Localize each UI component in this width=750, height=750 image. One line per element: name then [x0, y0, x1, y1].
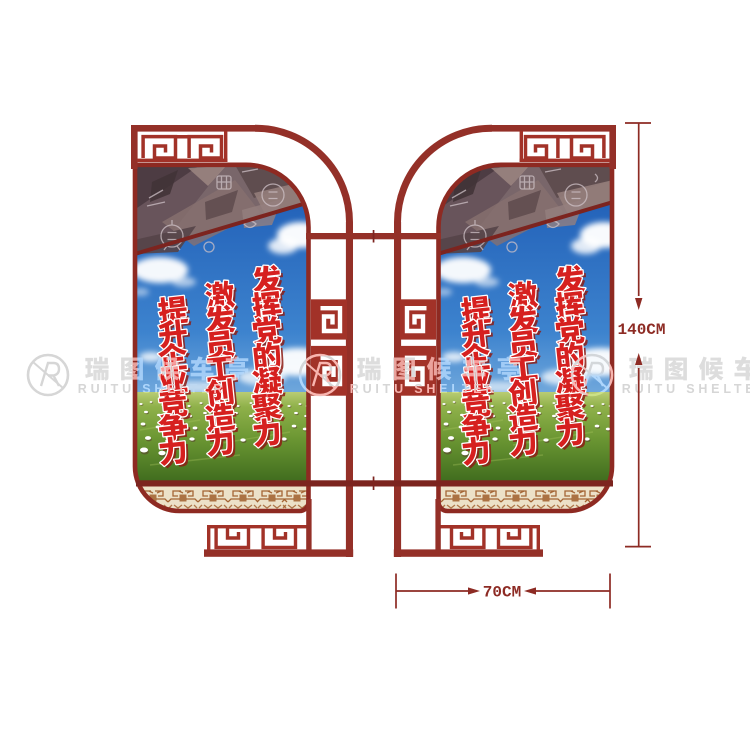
- svg-text:RUITU SHELTER: RUITU SHELTER: [350, 382, 498, 396]
- svg-text:70CM: 70CM: [483, 584, 521, 602]
- svg-text:140CM: 140CM: [617, 321, 665, 339]
- svg-text:RUITU SHELTER: RUITU SHELTER: [622, 382, 750, 396]
- svg-text:RUITU SHELTER: RUITU SHELTER: [78, 382, 226, 396]
